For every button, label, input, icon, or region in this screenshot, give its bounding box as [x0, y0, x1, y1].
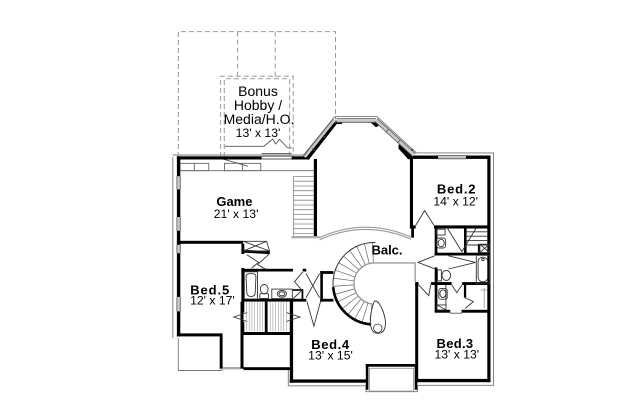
svg-text:21' x 13': 21' x 13' [214, 207, 259, 221]
svg-text:14' x 12': 14' x 12' [433, 195, 478, 209]
svg-text:Balc.: Balc. [371, 242, 402, 257]
svg-text:Media/H.O.: Media/H.O. [224, 111, 295, 127]
svg-text:12' x 17': 12' x 17' [190, 293, 235, 307]
svg-text:13' x 15': 13' x 15' [308, 348, 353, 362]
svg-text:13' x 13': 13' x 13' [236, 126, 281, 140]
svg-text:13' x 13': 13' x 13' [434, 348, 479, 362]
